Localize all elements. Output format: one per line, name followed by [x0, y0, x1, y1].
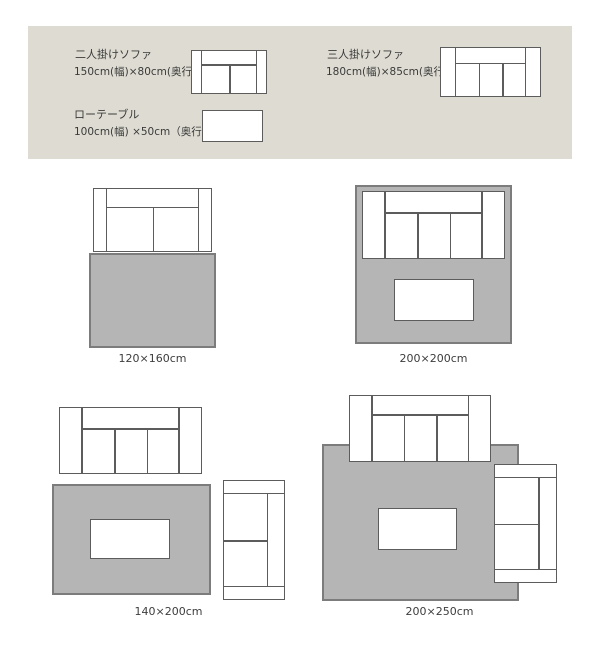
three-seat-sofa [349, 395, 491, 462]
legend-2seat-name: 二人掛けソファ [75, 48, 152, 61]
low-table [394, 279, 474, 321]
three-seat-sofa-icon [440, 47, 541, 97]
legend-table-size: 100cm(幅) ×50cm（奥行） [74, 126, 212, 139]
three-seat-sofa [362, 191, 505, 259]
size-label: 140×200cm [52, 605, 285, 618]
legend-2seat-size: 150cm(幅)×80cm(奥行) [74, 66, 196, 79]
size-label: 200×200cm [355, 352, 512, 365]
size-label: 200×250cm [322, 605, 557, 618]
three-seat-sofa [59, 407, 202, 474]
rotated-two-seat-sofa [223, 480, 285, 600]
low-table-icon [202, 110, 263, 142]
legend-3seat-name: 三人掛けソファ [327, 48, 404, 61]
size-label: 120×160cm [89, 352, 216, 365]
legend-table-name: ローテーブル [74, 108, 139, 121]
two-seat-sofa [93, 188, 212, 252]
rug [89, 253, 216, 348]
rotated-two-seat-sofa [494, 464, 557, 583]
low-table [90, 519, 170, 559]
two-seat-sofa-icon [191, 50, 267, 94]
low-table [378, 508, 457, 550]
legend-3seat-size: 180cm(幅)×85cm(奥行) [326, 66, 448, 79]
